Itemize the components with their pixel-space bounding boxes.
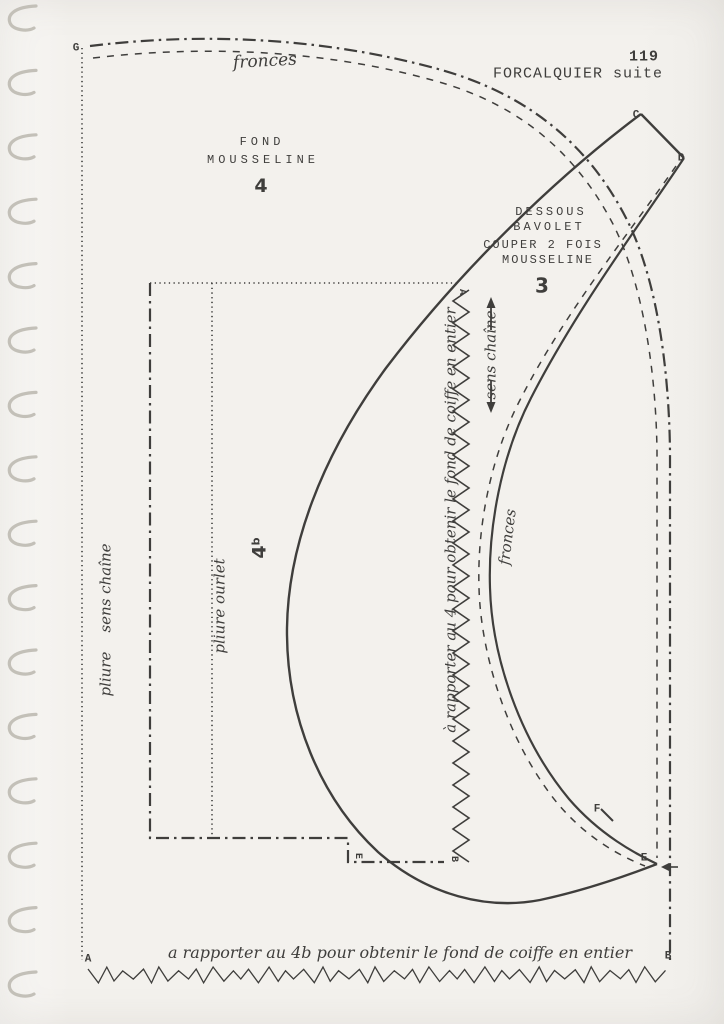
join-note-piece4b: a rapporter au 4b pour obtenir le fond d… [168,944,632,962]
pattern-drawing [0,0,724,1024]
grainline-label: sens chaîne [482,310,499,399]
marker-f: F [594,804,601,817]
fold-grainline-label: pliure sens chaîne [97,543,114,696]
binding-hook-icon [9,70,36,94]
marker-corner-4b: E [351,853,363,859]
piece4-number: 4 [254,176,267,198]
piece4-name-line1: FOND [240,136,285,150]
page-title: FORCALQUIER suite [493,65,663,82]
binding-hook-icon [9,908,36,932]
binding-hook-icon [9,779,36,803]
fronces-top-label: fronces [233,51,298,74]
binding-hook-icon [9,6,36,30]
piece3-name-line1: DESSOUS [515,206,586,220]
binding-hook-icon [9,521,36,545]
piece3-outer-curve [287,114,657,903]
binding-hook-icon [9,264,36,288]
binding-hook-icon [9,843,36,867]
scanned-pattern-page: 119 FORCALQUIER suite fronces FOND MOUSS… [0,0,724,1024]
piece4b-number-sup: b [250,538,263,546]
binding-hook-icon [9,714,36,738]
marker-c: C [633,110,640,123]
piece4b-outline-dashdot [150,283,444,862]
piece3-cutting-line1: COUPER 2 FOIS [483,239,603,253]
spiral-binding-icon [9,6,36,996]
piece4-gather-line-dashed [93,51,657,858]
join-note-piece4: à rapporter au 4 pour obtenir le fond de… [442,307,459,732]
marker-b: B [665,951,672,964]
zigzag-cut-bottom [88,967,666,983]
piece4-name-line2: MOUSSELINE [207,154,319,168]
marker-g: G [73,43,80,56]
marker-d: D [678,153,685,166]
page-number: 119 [629,48,659,65]
marker-a: A [85,954,92,967]
marker-zigzag-top: A [455,289,467,295]
piece4b-number: 4b [232,538,291,577]
binding-hook-icon [9,135,36,159]
piece4b-number-main: 4 [249,545,271,558]
notch-f [601,809,613,821]
binding-hook-icon [9,392,36,416]
piece3-name-line2: BAVOLET [513,221,584,235]
piece3-top-edge [641,114,684,158]
binding-hook-icon [9,972,36,996]
binding-hook-icon [9,328,36,352]
binding-hook-icon [9,586,36,610]
hem-fold-label: pliure ourlet [211,558,228,653]
marker-e: E [641,853,648,866]
piece3-cutting-line2: MOUSSELINE [502,254,594,268]
binding-hook-icon [9,199,36,223]
piece3-number: 3 [535,275,549,298]
marker-zigzag-bottom: B [447,856,459,862]
binding-hook-icon [9,457,36,481]
binding-hook-icon [9,650,36,674]
